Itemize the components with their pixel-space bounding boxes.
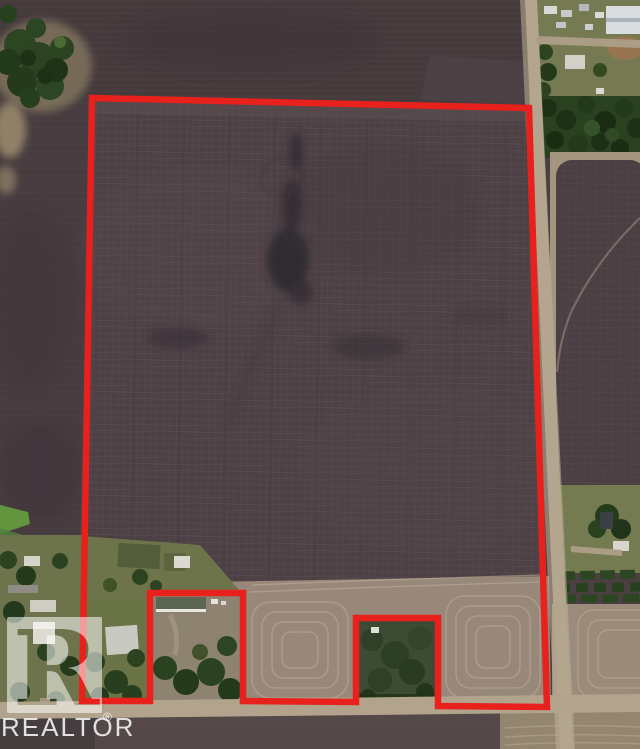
watermark-brand-text: REALTOR	[1, 712, 135, 742]
excluded-treed-block	[356, 618, 438, 706]
west-field	[0, 98, 92, 538]
satellite-scene: R	[0, 0, 640, 749]
long-shed-roof	[156, 597, 206, 610]
excluded-farmyard	[150, 593, 243, 703]
main-plowed-field	[80, 98, 560, 597]
east-house-roof	[600, 512, 613, 529]
registered-trademark-symbol: ®	[103, 710, 114, 724]
realtor-block-r-logo	[7, 617, 102, 713]
small-shed-roof	[174, 556, 190, 568]
tiny-shed-roof	[371, 627, 379, 633]
ne-shed	[565, 55, 585, 69]
aerial-photo: R	[0, 0, 640, 749]
